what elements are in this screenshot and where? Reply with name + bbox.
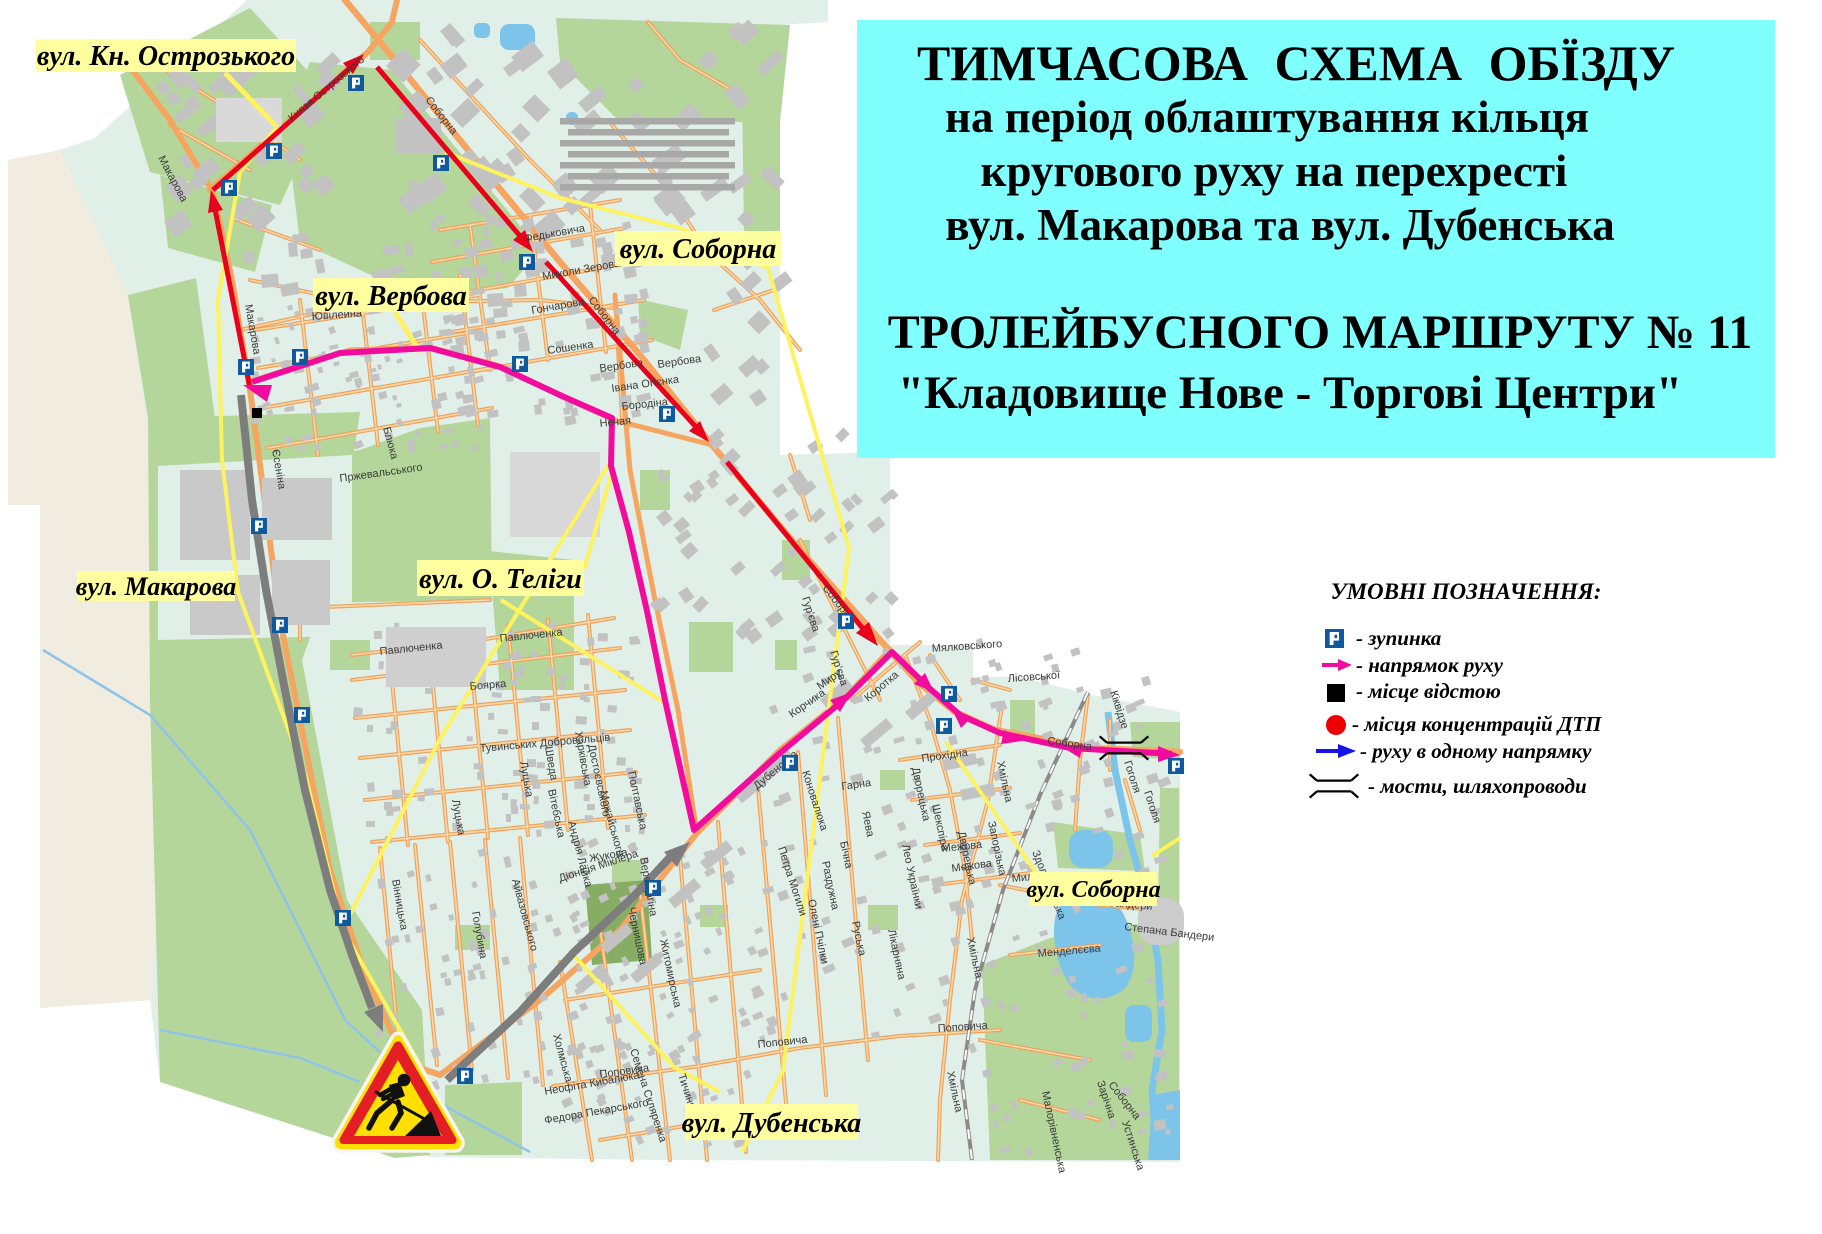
svg-text:вул. Кн. Острозького: вул. Кн. Острозького: [37, 41, 295, 72]
svg-text:вул. Соборна: вул. Соборна: [1026, 877, 1160, 903]
svg-text:вул. Макарова: вул. Макарова: [76, 572, 237, 601]
svg-text:на період облаштування кільця: на період облаштування кільця: [945, 92, 1589, 142]
svg-text:ТИМЧАСОВА СХЕМА ОБЇЗДУ: ТИМЧАСОВА СХЕМА ОБЇЗДУ: [917, 35, 1675, 91]
svg-text:вул. Дубенська: вул. Дубенська: [682, 1108, 861, 1139]
svg-text:- руху в одному напрямку: - руху в одному напрямку: [1360, 739, 1592, 763]
svg-text:- мости, шляхопроводи: - мости, шляхопроводи: [1368, 774, 1587, 798]
svg-text:"Кладовище Нове - Торгові Цент: "Кладовище Нове - Торгові Центри": [898, 367, 1682, 419]
svg-text:вул. Вербова: вул. Вербова: [315, 281, 467, 312]
svg-text:- місце відстою: - місце відстою: [1356, 679, 1501, 703]
svg-text:- напрямок руху: - напрямок руху: [1356, 653, 1504, 677]
svg-text:кругового руху на перехресті: кругового руху на перехресті: [981, 146, 1568, 196]
svg-text:вул. О. Теліги: вул. О. Теліги: [419, 564, 582, 595]
svg-text:ТРОЛЕЙБУСНОГО МАРШРУТУ № 11: ТРОЛЕЙБУСНОГО МАРШРУТУ № 11: [888, 306, 1753, 359]
svg-text:УМОВНІ ПОЗНАЧЕННЯ:: УМОВНІ ПОЗНАЧЕННЯ:: [1331, 579, 1602, 604]
svg-text:- місця концентрацій ДТП: - місця концентрацій ДТП: [1352, 712, 1602, 736]
svg-text:вул. Макарова та вул. Дубенськ: вул. Макарова та вул. Дубенська: [945, 200, 1615, 250]
svg-text:- зупинка: - зупинка: [1356, 626, 1441, 650]
svg-text:вул. Соборна: вул. Соборна: [620, 234, 777, 265]
